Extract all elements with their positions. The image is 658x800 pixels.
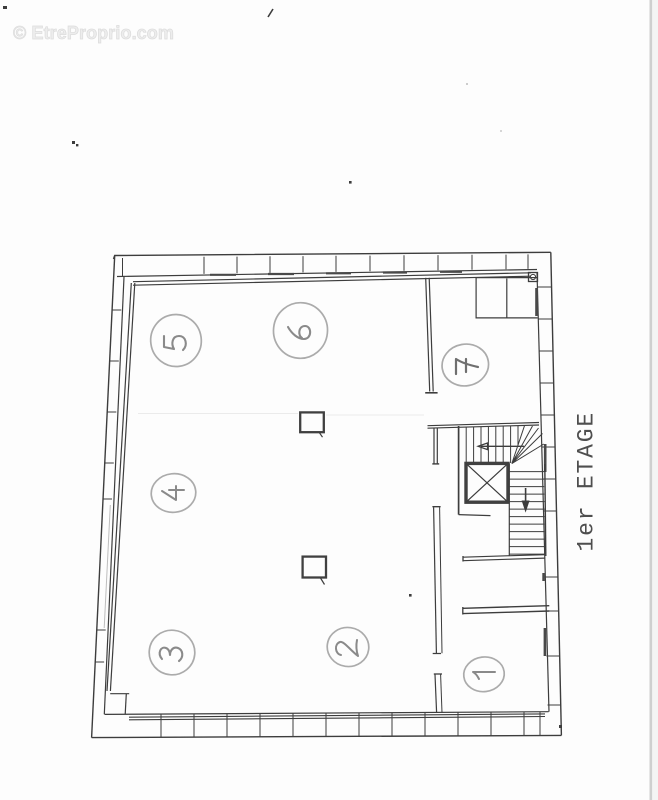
svg-text:© EtreProprio.com: © EtreProprio.com — [13, 23, 174, 43]
svg-text:1er ETAGE: 1er ETAGE — [574, 411, 600, 551]
